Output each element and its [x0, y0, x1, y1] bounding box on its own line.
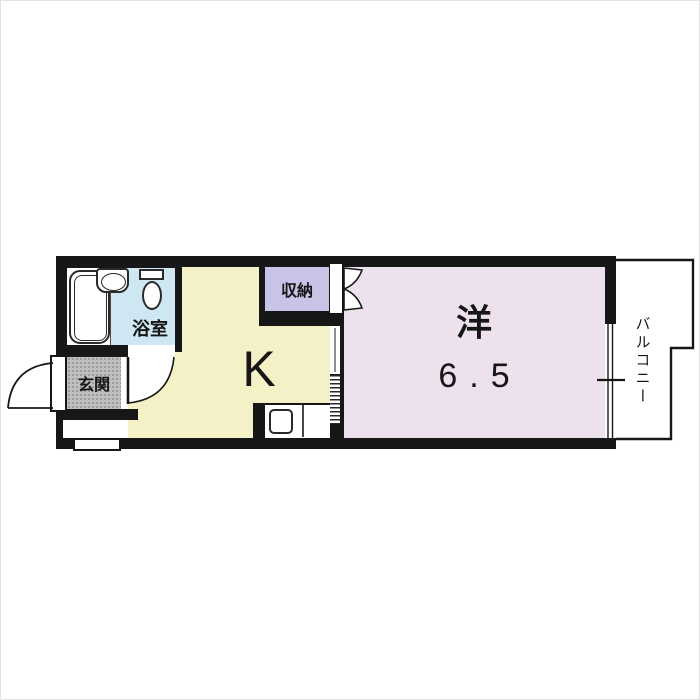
closet-label: 収納	[265, 279, 329, 299]
counter-end-wall	[253, 403, 265, 438]
western-room-size: 6.5	[404, 356, 544, 396]
entrance-bottom-wall	[56, 409, 138, 420]
washbasin-bowl	[101, 273, 126, 291]
toilet-tank-icon	[139, 269, 164, 280]
western-room	[344, 267, 605, 438]
sliding-window-icon	[605, 324, 616, 438]
entry-step	[63, 420, 128, 438]
bathroom-label: 浴室	[123, 317, 177, 339]
kitchen-label: K	[229, 341, 289, 397]
balcony-label: バルコニー	[631, 283, 653, 439]
partition-doorway	[330, 326, 340, 374]
partition-accordion-door-icon	[330, 375, 340, 424]
entrance-door-arc	[8, 363, 53, 408]
toilet-bowl-icon	[142, 281, 162, 310]
kitchen-sink-icon	[269, 409, 293, 434]
entrance-doorway	[121, 357, 128, 409]
washbasin-icon	[96, 268, 129, 293]
floor-plan: 浴室 玄関 K 収納 洋 6.5 バルコニー	[0, 0, 700, 700]
western-room-label: 洋	[444, 300, 504, 340]
closet-door-leaf	[330, 264, 342, 313]
exterior-step	[73, 438, 121, 451]
balcony-outline	[616, 260, 693, 439]
bathroom-doorway	[128, 345, 175, 358]
entrance-label: 玄関	[67, 373, 121, 393]
front-door-icon	[50, 355, 67, 412]
